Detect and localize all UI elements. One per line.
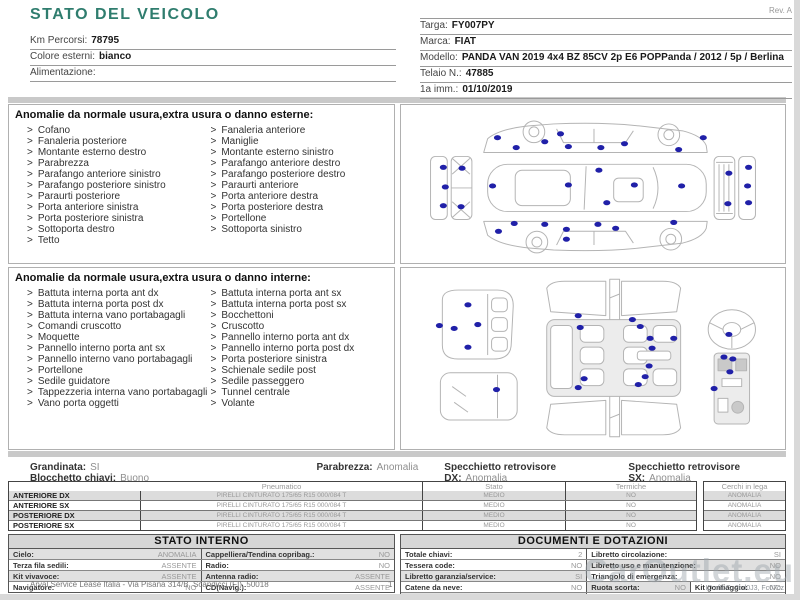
anomaly-label: Montante esterno sinistro	[221, 147, 333, 158]
kv-label: Codice autoradio:	[405, 594, 469, 595]
list-marker: >	[211, 147, 217, 158]
anomaly-item: >Tappezzeria interna vano portabagagli	[27, 387, 211, 398]
anomaly-label: Bocchettoni	[221, 310, 273, 321]
anomaly-item: >Porta posteriore destra	[211, 202, 395, 213]
field-value: FY007PY	[452, 20, 495, 31]
kv-value: NO	[571, 583, 582, 592]
status-left-block: Grandinata:SIBlocchetto chiavi:Buono	[30, 462, 316, 480]
anomaly-item: >Paraurti posteriore	[27, 191, 211, 202]
list-marker: >	[211, 343, 217, 354]
damage-dot	[729, 356, 736, 361]
tyre-position: POSTERIORE DX	[9, 511, 141, 520]
anomaly-label: Parafango anteriore destro	[221, 158, 340, 169]
anomaly-label: Porta posteriore sinistra	[38, 213, 144, 224]
list-marker: >	[27, 147, 33, 158]
kv-value: ASSENTE	[355, 572, 390, 581]
tyre-position: ANTERIORE SX	[9, 501, 141, 510]
anomaly-item: >Pannello interno porta ant dx	[211, 332, 395, 343]
lega-row: ANOMALIA	[704, 520, 785, 530]
kv-value: NO	[379, 550, 390, 559]
list-marker: >	[27, 224, 33, 235]
damage-dot	[726, 369, 733, 374]
exterior-anomalies-panel: Anomalie da normale usura,extra usura o …	[8, 104, 395, 264]
damage-dot	[563, 227, 570, 232]
kv-value: ASSENTE	[355, 583, 390, 592]
tyre-termiche: NO	[566, 521, 696, 530]
list-marker: >	[27, 213, 33, 224]
field-label: Targa:	[420, 20, 448, 31]
field-label: Telaio N.:	[420, 68, 462, 79]
anomaly-item: >Porta posteriore sinistra	[27, 213, 211, 224]
col-header-stato: Stato	[423, 482, 566, 491]
damage-dot	[631, 182, 638, 187]
list-marker: >	[27, 376, 33, 387]
damage-dot	[563, 237, 570, 242]
kv-value: NO	[571, 594, 582, 595]
anomaly-label: Tappezzeria interna vano portabagagli	[38, 387, 208, 398]
damage-dot	[541, 139, 548, 144]
tyre-stato: MEDIO	[423, 511, 566, 520]
status-label: Parabrezza:	[316, 462, 372, 473]
kv-label: Cavo elettrico:	[591, 594, 643, 595]
kv-label: Cielo:	[13, 550, 34, 559]
anomaly-item: >Pannello interno porta post dx	[211, 343, 395, 354]
anomaly-item: >Maniglie	[211, 136, 395, 147]
anomaly-label: Battuta interna porta post sx	[221, 299, 346, 310]
list-marker: >	[27, 169, 33, 180]
divider-band-bottom	[8, 451, 786, 457]
interior-anomalies-col2: >Battuta interna porta ant sx>Battuta in…	[211, 288, 395, 409]
damage-dot	[744, 183, 751, 188]
tyre-row: POSTERIORE SXPIRELLI CINTURATO 175/65 R1…	[9, 520, 696, 530]
anomaly-label: Sedile passeggero	[221, 376, 304, 387]
anomaly-item: >Battuta interna porta ant sx	[211, 288, 395, 299]
kv-label: Totale chiavi:	[405, 550, 452, 559]
damage-dot	[594, 222, 601, 227]
anomaly-item: >Montante esterno sinistro	[211, 147, 395, 158]
list-marker: >	[211, 169, 217, 180]
damage-dot	[745, 165, 752, 170]
anomaly-label: Portellone	[38, 365, 83, 376]
anomaly-item: >Parafango anteriore sinistro	[27, 169, 211, 180]
anomaly-label: Battuta interna porta post dx	[38, 299, 164, 310]
anomaly-item: >Pannello interno vano portabagagli	[27, 354, 211, 365]
damage-dot	[635, 382, 642, 387]
exterior-anomalies-col2: >Fanaleria anteriore>Maniglie>Montante e…	[211, 125, 395, 246]
interior-anomalies-panel: Anomalie da normale usura,extra usura o …	[8, 267, 395, 450]
damage-dot	[725, 332, 732, 337]
anomaly-item: >Fanaleria posteriore	[27, 136, 211, 147]
anomaly-item: >Sedile guidatore	[27, 376, 211, 387]
damage-dot	[700, 135, 707, 140]
tyre-termiche: NO	[566, 491, 696, 500]
info-field: Marca:FIAT	[420, 35, 792, 51]
anomaly-item: >Battuta interna porta ant dx	[27, 288, 211, 299]
damage-dot	[649, 346, 656, 351]
tyre-cerchi: ANOMALIA	[704, 501, 785, 510]
damage-dot	[675, 147, 682, 152]
kv-label: Catene da neve:	[405, 583, 463, 592]
field-value: 78795	[91, 35, 119, 46]
anomaly-item: >Cruscotto	[211, 321, 395, 332]
list-marker: >	[27, 310, 33, 321]
anomaly-label: Porta anteriore destra	[221, 191, 318, 202]
damage-dot	[513, 145, 520, 150]
anomaly-label: Paraurti posteriore	[38, 191, 120, 202]
kv-value: NO	[571, 561, 582, 570]
kv-label: Tessera code:	[405, 561, 455, 570]
tyre-name: PIRELLI CINTURATO 175/65 R15 000/084 T	[141, 501, 423, 510]
tyre-name: PIRELLI CINTURATO 175/65 R15 000/084 T	[141, 511, 423, 520]
anomaly-item: >Porta posteriore sinistra	[211, 354, 395, 365]
list-marker: >	[27, 235, 33, 246]
anomaly-item: >Battuta interna vano portabagagli	[27, 310, 211, 321]
anomaly-item: >Porta anteriore sinistra	[27, 202, 211, 213]
damage-dot	[637, 324, 644, 329]
tyre-position: POSTERIORE SX	[9, 521, 141, 530]
lega-row: ANOMALIA	[704, 510, 785, 520]
damage-dot	[603, 200, 610, 205]
info-field: Modello:PANDA VAN 2019 4x4 BZ 85CV 2p E6…	[420, 51, 792, 67]
list-marker: >	[27, 354, 33, 365]
list-marker: >	[27, 158, 33, 169]
anomaly-label: Vano porta oggetti	[38, 398, 119, 409]
anomaly-label: Sottoporta destro	[38, 224, 115, 235]
anomaly-item: >Moquette	[27, 332, 211, 343]
kv-label: Radio:	[206, 561, 229, 570]
anomaly-label: Parafango posteriore destro	[221, 169, 345, 180]
list-marker: >	[211, 202, 217, 213]
damage-dot	[565, 144, 572, 149]
kv-cell: Terza fila sedili:ASSENTE	[9, 560, 202, 570]
tyre-table-header: Pneumatico Stato Termiche	[9, 482, 696, 491]
tyre-name: PIRELLI CINTURATO 175/65 R15 000/084 T	[141, 491, 423, 500]
field-label: Colore esterni:	[30, 51, 95, 62]
tyre-row: ANTERIORE SXPIRELLI CINTURATO 175/65 R15…	[9, 500, 696, 510]
anomaly-item: >Parabrezza	[27, 158, 211, 169]
damage-dot	[678, 183, 685, 188]
damage-dot	[489, 183, 496, 188]
tyre-stato: MEDIO	[423, 501, 566, 510]
tyre-row: POSTERIORE DXPIRELLI CINTURATO 175/65 R1…	[9, 510, 696, 520]
page-number: 1	[388, 580, 392, 589]
list-marker: >	[27, 191, 33, 202]
col-header-cerchi: Cerchi in lega	[704, 482, 785, 491]
damage-dot	[581, 376, 588, 381]
anomaly-item: >Pannello interno porta ant sx	[27, 343, 211, 354]
anomaly-item: >Tetto	[27, 235, 211, 246]
damage-dot	[595, 168, 602, 173]
anomaly-label: Parabrezza	[38, 158, 89, 169]
field-label: Modello:	[420, 52, 458, 63]
anomaly-item: >Parafango posteriore sinistro	[27, 180, 211, 191]
tyre-stato: MEDIO	[423, 491, 566, 500]
anomaly-lists-column: Anomalie da normale usura,extra usura o …	[8, 104, 395, 450]
anomaly-label: Porta posteriore destra	[221, 202, 323, 213]
damage-dot	[670, 220, 677, 225]
field-label: Alimentazione:	[30, 67, 96, 78]
damage-dot	[495, 229, 502, 234]
anomaly-label: Parafango posteriore sinistro	[38, 180, 166, 191]
list-marker: >	[27, 387, 33, 398]
kv-row: Terza fila sedili:ASSENTERadio:NO	[9, 559, 394, 570]
exterior-damage-diagram	[401, 105, 785, 263]
list-marker: >	[211, 310, 217, 321]
kv-label: Libretto garanzia/service:	[405, 572, 496, 581]
damage-dot	[474, 322, 481, 327]
info-field: Km Percorsi:78795	[30, 34, 396, 50]
tyre-name: PIRELLI CINTURATO 175/65 R15 000/084 T	[141, 521, 423, 530]
damage-dot	[575, 385, 582, 390]
anomaly-label: Fanaleria posteriore	[38, 136, 127, 147]
kv-cell: Totale chiavi:2	[401, 549, 587, 559]
interior-damage-diagram	[401, 268, 785, 449]
anomaly-item: >Montante esterno destro	[27, 147, 211, 158]
field-value: bianco	[99, 51, 131, 62]
revision-label: Rev. A	[420, 6, 792, 18]
anomaly-item: >Sottoporta sinistro	[211, 224, 395, 235]
list-marker: >	[211, 191, 217, 202]
damage-dot	[629, 317, 636, 322]
damage-dot	[647, 336, 654, 341]
exterior-diagram-panel	[400, 104, 786, 264]
list-marker: >	[27, 202, 33, 213]
kv-cell: Catene da neve:NO	[401, 582, 587, 592]
list-marker: >	[27, 398, 33, 409]
kv-row: Codice autoradio:NOCavo elettrico:	[401, 592, 785, 594]
kv-cell: Cielo:ANOMALIA	[9, 549, 202, 559]
damage-dot	[458, 204, 465, 209]
damage-dot	[442, 184, 449, 189]
anomaly-item: >Battuta interna porta post dx	[27, 299, 211, 310]
field-label: Km Percorsi:	[30, 35, 87, 46]
tyre-termiche: NO	[566, 511, 696, 520]
anomaly-label: Parafango anteriore sinistro	[38, 169, 161, 180]
damage-dot	[725, 171, 732, 176]
info-field: Colore esterni:bianco	[30, 50, 396, 66]
anomaly-item: >Fanaleria anteriore	[211, 125, 395, 136]
anomaly-item: >Tunnel centrale	[211, 387, 395, 398]
anomaly-label: Pannello interno porta ant sx	[38, 343, 165, 354]
page-title: STATO DEL VEICOLO	[30, 6, 396, 24]
damage-dot	[577, 325, 584, 330]
anomaly-label: Battuta interna porta ant sx	[221, 288, 341, 299]
anomaly-item: >Cofano	[27, 125, 211, 136]
exterior-anomalies-col1: >Cofano>Fanaleria posteriore>Montante es…	[27, 125, 211, 246]
damage-dot	[494, 135, 501, 140]
damage-dot	[711, 386, 718, 391]
damage-dot	[642, 374, 649, 379]
field-value: 47885	[466, 68, 494, 79]
list-marker: >	[211, 354, 217, 365]
anomaly-label: Porta anteriore sinistra	[38, 202, 139, 213]
anomaly-item: >Paraurti anteriore	[211, 180, 395, 191]
damage-dot	[557, 131, 564, 136]
damage-dot	[451, 326, 458, 331]
anomaly-item: >Portellone	[211, 213, 395, 224]
documenti-header: DOCUMENTI E DOTAZIONI	[401, 535, 785, 549]
diagram-column	[400, 104, 786, 450]
list-marker: >	[27, 332, 33, 343]
anomaly-label: Tunnel centrale	[221, 387, 290, 398]
field-value: FIAT	[455, 36, 476, 47]
tyre-row: ANTERIORE DXPIRELLI CINTURATO 175/65 R15…	[9, 491, 696, 500]
list-marker: >	[211, 387, 217, 398]
list-marker: >	[211, 213, 217, 224]
damage-dot	[745, 200, 752, 205]
anomaly-item: >Sedile passeggero	[211, 376, 395, 387]
list-marker: >	[211, 180, 217, 191]
status-label: Grandinata:	[30, 462, 86, 473]
list-marker: >	[211, 158, 217, 169]
field-value: PANDA VAN 2019 4x4 BZ 85CV 2p E6 POPPand…	[462, 52, 784, 63]
list-marker: >	[27, 343, 33, 354]
damage-dot	[597, 145, 604, 150]
anomaly-item: >Parafango posteriore destro	[211, 169, 395, 180]
status-field: Parabrezza:Anomalia	[316, 462, 418, 473]
anomaly-item: >Battuta interna porta post sx	[211, 299, 395, 310]
kv-value: ANOMALIA	[158, 550, 197, 559]
anomaly-item: >Sottoporta destro	[27, 224, 211, 235]
info-field: Targa:FY007PY	[420, 18, 792, 35]
kv-cell: Cappelliera/Tendina copribag.:NO	[202, 549, 395, 559]
tyre-termiche: NO	[566, 501, 696, 510]
footer-id-code: ID:cfIbG, 2cd0J3, Fc07cz	[705, 585, 784, 592]
field-value: 01/10/2019	[462, 84, 512, 95]
anomaly-label: Paraurti anteriore	[221, 180, 298, 191]
list-marker: >	[211, 365, 217, 376]
list-marker: >	[27, 321, 33, 332]
damage-dot	[440, 165, 447, 170]
damage-dot	[541, 222, 548, 227]
damage-dot	[464, 345, 471, 350]
anomaly-item: >Bocchettoni	[211, 310, 395, 321]
kv-label: Terza fila sedili:	[13, 561, 69, 570]
damage-dot	[575, 313, 582, 318]
damage-dot	[459, 166, 466, 171]
vehicle-report-page: STATO DEL VEICOLO Km Percorsi:78795Color…	[0, 0, 794, 594]
vehicle-info-right: Targa:FY007PYMarca:FIATModello:PANDA VAN…	[420, 18, 792, 99]
list-marker: >	[211, 136, 217, 147]
anomaly-item: >Vano porta oggetti	[27, 398, 211, 409]
info-field: Telaio N.:47885	[420, 67, 792, 83]
field-label: 1a imm.:	[420, 84, 458, 95]
anomaly-label: Battuta interna porta ant dx	[38, 288, 159, 299]
anomaly-label: Cruscotto	[221, 321, 264, 332]
field-label: Marca:	[420, 36, 451, 47]
status-inline-block: Parabrezza:AnomaliaSpecchietto retroviso…	[316, 462, 786, 480]
tyre-stato: MEDIO	[423, 521, 566, 530]
tyre-position: ANTERIORE DX	[9, 491, 141, 500]
kv-cell: Libretto garanzia/service:SI	[401, 571, 587, 581]
list-marker: >	[211, 224, 217, 235]
damage-dot	[621, 141, 628, 146]
kv-label: Cappelliera/Tendina copribag.:	[206, 550, 315, 559]
damage-dot	[511, 221, 518, 226]
anomaly-label: Volante	[221, 398, 254, 409]
list-marker: >	[27, 136, 33, 147]
interior-anomalies-col1: >Battuta interna porta ant dx>Battuta in…	[27, 288, 211, 409]
anomaly-label: Sottoporta sinistro	[221, 224, 302, 235]
list-marker: >	[27, 365, 33, 376]
list-marker: >	[211, 398, 217, 409]
list-marker: >	[211, 299, 217, 310]
anomaly-label: Pannello interno porta post dx	[221, 343, 354, 354]
damage-dot	[493, 387, 500, 392]
list-marker: >	[211, 321, 217, 332]
anomaly-item: >Porta anteriore destra	[211, 191, 395, 202]
list-marker: >	[211, 332, 217, 343]
status-value: SI	[90, 462, 99, 473]
list-marker: >	[211, 125, 217, 136]
tyre-table-lega: Cerchi in lega ANOMALIAANOMALIAANOMALIAA…	[703, 481, 786, 531]
tyre-table: Pneumatico Stato Termiche ANTERIORE DXPI…	[8, 481, 786, 531]
anomaly-label: Porta posteriore sinistra	[221, 354, 327, 365]
vehicle-info-left: Km Percorsi:78795Colore esterni:biancoAl…	[30, 34, 396, 82]
interior-diagram-panel	[400, 267, 786, 450]
list-marker: >	[211, 288, 217, 299]
list-marker: >	[27, 180, 33, 191]
anomaly-item: >Schienale sedile post	[211, 365, 395, 376]
main-content: Anomalie da normale usura,extra usura o …	[8, 104, 786, 450]
tyre-cerchi: ANOMALIA	[704, 521, 785, 530]
col-header-termiche: Termiche	[566, 482, 696, 491]
anomaly-label: Montante esterno destro	[38, 147, 146, 158]
stato-interno-header: STATO INTERNO	[9, 535, 394, 549]
anomaly-label: Schienale sedile post	[221, 365, 316, 376]
anomaly-label: Moquette	[38, 332, 80, 343]
tyre-cerchi: ANOMALIA	[704, 491, 785, 500]
damage-dot	[565, 182, 572, 187]
info-field: Alimentazione:	[30, 66, 396, 82]
kv-row: Cielo:ANOMALIACappelliera/Tendina coprib…	[9, 549, 394, 559]
anomaly-item: >Portellone	[27, 365, 211, 376]
report-header: STATO DEL VEICOLO Km Percorsi:78795Color…	[8, 4, 786, 96]
kv-cell: Codice autoradio:NO	[401, 593, 587, 594]
damage-dot	[612, 226, 619, 231]
anomaly-item: >Comandi cruscotto	[27, 321, 211, 332]
anomaly-label: Fanaleria anteriore	[221, 125, 305, 136]
kv-value: 2	[578, 550, 582, 559]
interior-anomalies-header: Anomalie da normale usura,extra usura o …	[9, 268, 394, 286]
info-field: 1a imm.:01/10/2019	[420, 83, 792, 99]
anomaly-label: Sedile guidatore	[38, 376, 110, 387]
exterior-anomalies-header: Anomalie da normale usura,extra usura o …	[9, 105, 394, 123]
kv-cell: Cavo elettrico:	[587, 593, 785, 594]
header-left-block: STATO DEL VEICOLO Km Percorsi:78795Color…	[30, 4, 396, 82]
kv-value: ASSENTE	[161, 561, 196, 570]
damage-dot	[440, 203, 447, 208]
damage-dot	[720, 354, 727, 359]
kv-value: NO	[379, 561, 390, 570]
tyre-cerchi: ANOMALIA	[704, 511, 785, 520]
kv-cell: Tessera code:NO	[401, 560, 587, 570]
damage-dot	[670, 336, 677, 341]
status-value: Anomalia	[377, 462, 419, 473]
damage-dot	[464, 302, 471, 307]
anomaly-label: Comandi cruscotto	[38, 321, 121, 332]
status-line: Grandinata:SIBlocchetto chiavi:Buono Par…	[8, 458, 786, 480]
footer-company: Arval Service Lease Italia - Via Pisana …	[30, 580, 269, 589]
anomaly-label: Maniglie	[221, 136, 258, 147]
col-header-pneumatico: Pneumatico	[141, 482, 423, 491]
anomaly-item: >Parafango anteriore destro	[211, 158, 395, 169]
status-field: Grandinata:SI	[30, 462, 316, 473]
anomaly-label: Cofano	[38, 125, 70, 136]
kv-cell: Radio:NO	[202, 560, 395, 570]
damage-dot	[646, 363, 653, 368]
tyre-table-main: Pneumatico Stato Termiche ANTERIORE DXPI…	[8, 481, 697, 531]
